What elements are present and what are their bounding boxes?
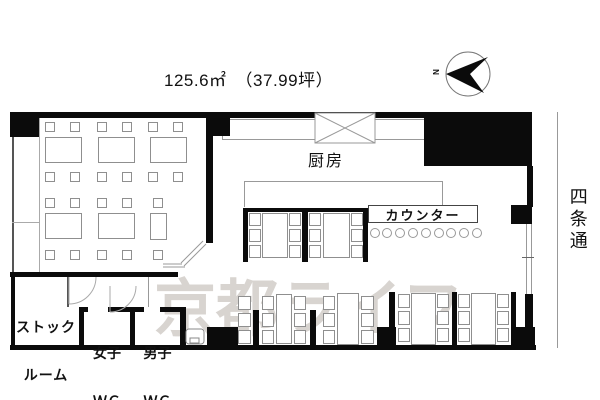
kitchen-label: 厨房 bbox=[308, 153, 344, 171]
counter-label: カウンター bbox=[385, 205, 460, 224]
stock-room-label-line2: ルーム bbox=[14, 367, 78, 383]
door-arc-wc bbox=[110, 286, 136, 312]
kitchen-hood-xbox bbox=[315, 113, 375, 143]
counter-label-box: カウンター bbox=[368, 205, 478, 223]
compass-north-label: N bbox=[431, 69, 440, 75]
entrance-angled-lines bbox=[163, 241, 206, 267]
wc-men-label-line1: 男子 bbox=[135, 345, 180, 361]
stock-room-label-line1: ストック bbox=[14, 319, 78, 335]
street-label: 四条通 bbox=[567, 187, 588, 253]
stock-room-label: ストック ルーム bbox=[14, 287, 78, 400]
wc-women-label-line2: ＷＣ bbox=[84, 393, 130, 400]
floor-plan: 京都ライフ bbox=[0, 0, 600, 400]
wc-women-label: 女子 ＷＣ bbox=[84, 313, 130, 400]
wc-women-label-line1: 女子 bbox=[84, 345, 130, 361]
wc-men-label-line2: ＷＣ bbox=[135, 393, 180, 400]
area-text: 125.6㎡ （37.99坪） bbox=[164, 71, 333, 91]
compass-icon: N bbox=[431, 52, 490, 96]
toilet-icon bbox=[186, 329, 204, 344]
wc-men-label: 男子 ＷＣ bbox=[135, 313, 180, 400]
